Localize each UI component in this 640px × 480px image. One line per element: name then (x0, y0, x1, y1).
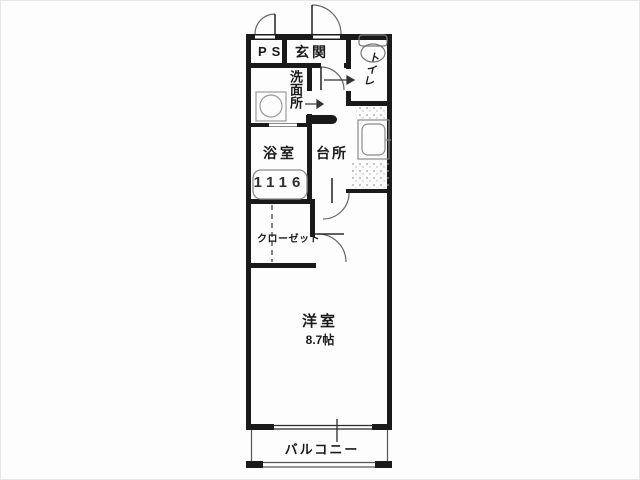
door-arc-ps (255, 14, 275, 34)
room-label-closet: クローゼット (257, 234, 313, 246)
door-arc-entrance (312, 5, 341, 34)
washing-machine-icon (256, 92, 286, 121)
balcony-window (273, 419, 373, 442)
kitchen-counter-bar (306, 115, 337, 124)
door-arc-kitchen (323, 193, 349, 219)
floor-plan-canvas: PS 玄関 トイレ 洗面所 浴室 1116 台所 クローゼット 洋室 8.7帖 … (0, 0, 640, 480)
wall-bottom-left (246, 424, 274, 430)
room-label-kitchen: 台所 (314, 145, 350, 161)
wall-kitchen-nook-bottom (346, 189, 392, 193)
wall-bottom-right (372, 424, 392, 430)
bathroom-unit-size: 1116 (252, 174, 307, 191)
wall-bath-bottom (251, 199, 313, 204)
western-room-size: 8.7帖 (297, 334, 343, 348)
room-label-genkan: 玄関 (295, 44, 339, 60)
wall-closet-right (310, 199, 315, 237)
wall-right (387, 34, 392, 430)
wall-bath-divider-left (251, 123, 269, 127)
wall-closet-bottom (251, 263, 316, 268)
room-label-balcony: バルコニー (283, 443, 361, 458)
entry-arrow-toilet (324, 76, 354, 84)
kitchen-sink-icon (358, 120, 391, 159)
wall-toilet-left-top (346, 39, 351, 69)
room-label-western-room: 洋室 (297, 313, 343, 330)
wall-left (246, 34, 251, 430)
door-arc-genkan-kitchen (321, 67, 344, 90)
wall-washroom-right-bottom (307, 114, 312, 204)
threshold-entrance (313, 36, 340, 39)
wall-washroom-right-top (307, 63, 312, 91)
door-arc-room (318, 234, 346, 262)
floor-plan-drawing (1, 1, 640, 480)
stipple-patch-top (356, 106, 387, 119)
stipple-patch-bottom (351, 161, 389, 188)
room-label-washroom: 洗面所 (287, 70, 302, 130)
balcony-corner-right (375, 461, 392, 468)
room-label-ps: PS (253, 45, 283, 60)
threshold-ps (255, 36, 275, 39)
balcony-corner-left (246, 461, 263, 468)
room-label-bathroom: 浴室 (259, 145, 301, 161)
entry-arrow-washroom (305, 100, 323, 108)
